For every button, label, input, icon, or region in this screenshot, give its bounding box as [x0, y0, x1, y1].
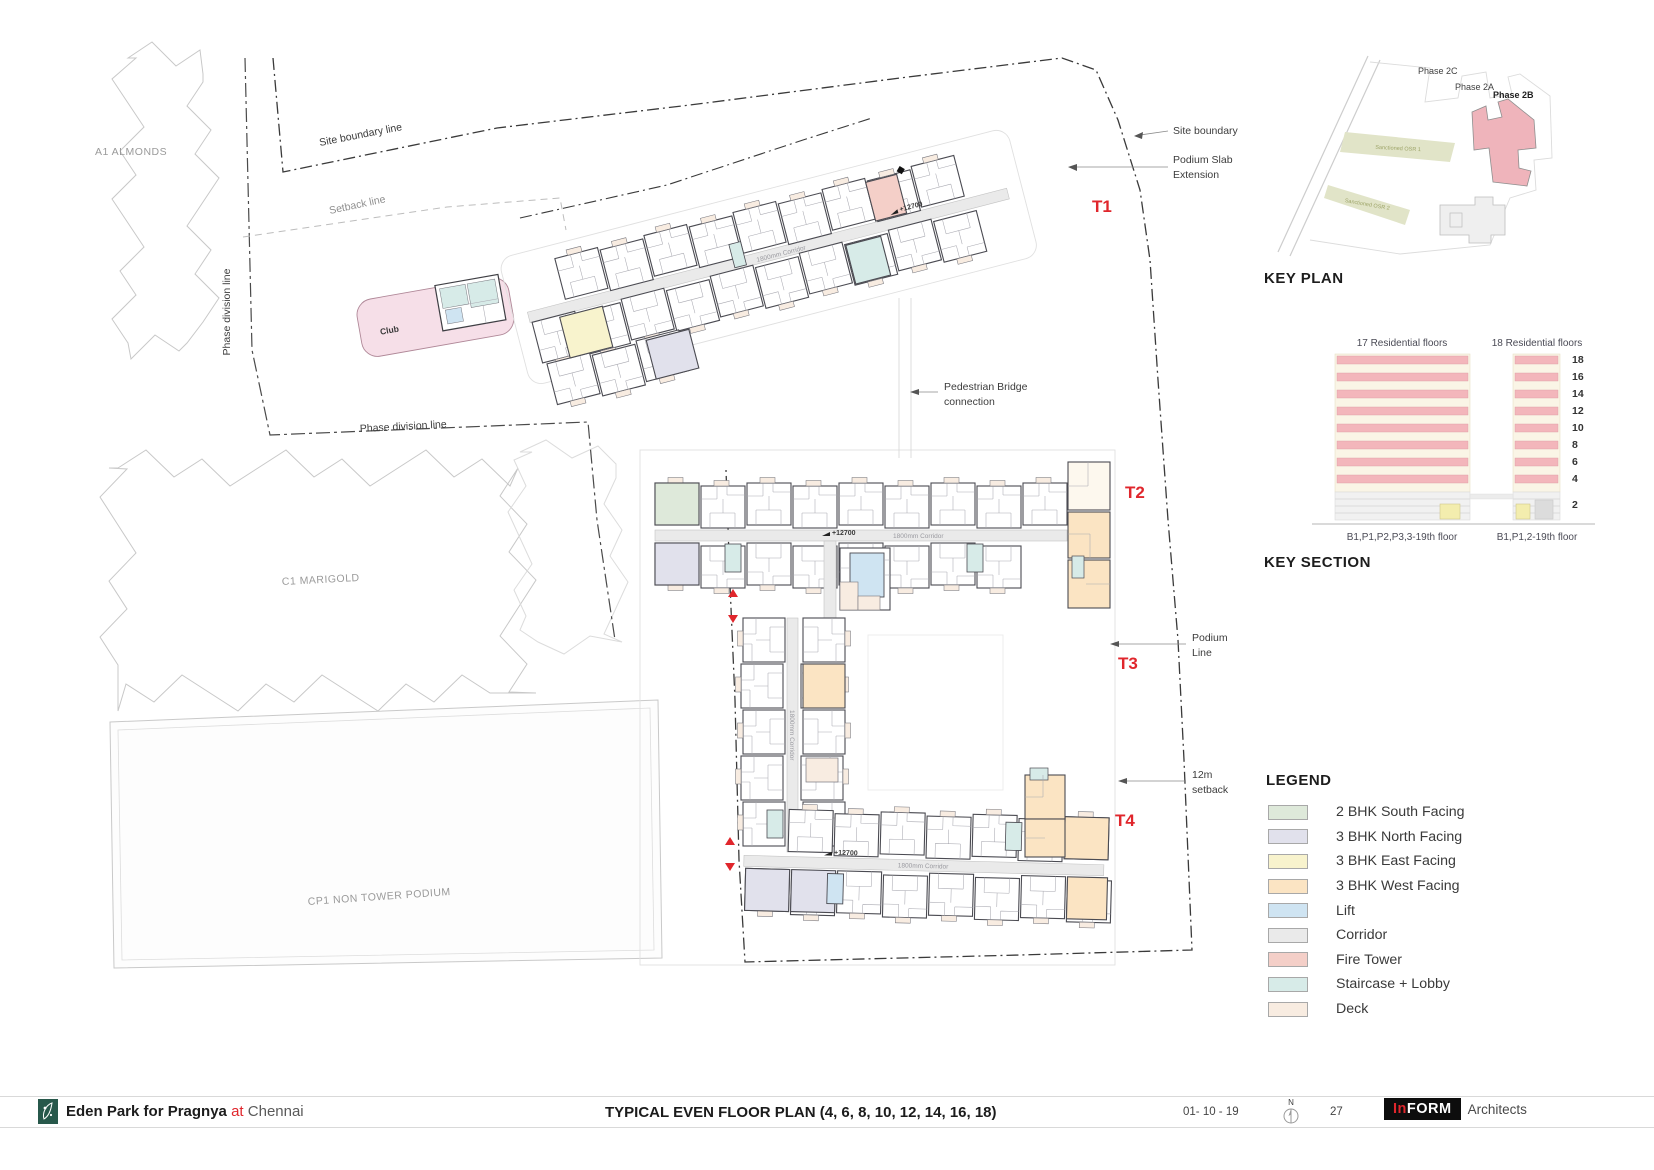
- legend-swatch: [1268, 928, 1308, 943]
- t2-right-arm: [1068, 462, 1110, 608]
- legend-label: Lift: [1336, 903, 1355, 919]
- footer-top-rule: [0, 1096, 1654, 1097]
- label-pedestrian-2: connection: [944, 396, 995, 408]
- legend-label: 3 BHK North Facing: [1336, 829, 1462, 845]
- svg-text:2: 2: [1572, 499, 1578, 511]
- corridor-label-t4: 1800mm Corridor: [898, 862, 950, 870]
- legend-label: Fire Tower: [1336, 952, 1402, 968]
- north-label: N: [1288, 1098, 1294, 1107]
- keyplan-phase2b-label: Phase 2B: [1493, 90, 1534, 100]
- label-podium-line-1: Podium: [1192, 632, 1228, 644]
- keysection-right-core2: [1535, 500, 1553, 519]
- setback-line: [243, 198, 566, 237]
- label-site-boundary-line: Site boundary line: [318, 121, 403, 149]
- cp1-podium-outline: [110, 700, 662, 968]
- label-site-boundary: Site boundary: [1173, 125, 1239, 137]
- legend-item-5: Corridor: [1268, 923, 1588, 948]
- label-tower-t2: T2: [1125, 483, 1145, 502]
- project-title: Eden Park for Pragnya at Chennai: [66, 1103, 304, 1120]
- svg-text:10: 10: [1572, 422, 1584, 434]
- key-section: 17 Residential floors 18 Residential flo…: [1250, 328, 1654, 550]
- label-tower-t1: T1: [1092, 197, 1112, 216]
- legend-label: 3 BHK West Facing: [1336, 878, 1460, 894]
- tower-t1: 1800mm Corridor +12700: [498, 127, 1047, 418]
- svg-text:18: 18: [1572, 354, 1584, 366]
- keysection-link: [1470, 494, 1513, 499]
- keyplan-phase2a-label: Phase 2A: [1455, 82, 1494, 92]
- legend-swatch: [1268, 829, 1308, 844]
- corridor-label-t2: 1800mm Corridor: [893, 533, 944, 540]
- label-setback: setback: [1192, 784, 1229, 796]
- project-city: Chennai: [248, 1103, 304, 1120]
- drawing-date: 01- 10 - 19: [1183, 1106, 1239, 1118]
- legend-swatch: [1268, 952, 1308, 967]
- label-c1-marigold: C1 MARIGOLD: [282, 572, 360, 588]
- legend-swatch: [1268, 1002, 1308, 1017]
- firm-form: FORM: [1407, 1101, 1452, 1117]
- keysection-right-header: 18 Residential floors: [1492, 338, 1583, 349]
- legend-item-6: Fire Tower: [1268, 948, 1588, 973]
- legend-label: Corridor: [1336, 927, 1387, 943]
- corridor-vertical: [824, 541, 836, 629]
- label-tower-t4: T4: [1115, 811, 1135, 830]
- courtyard-outline: [868, 635, 1003, 790]
- level-marker-t4: +12700: [834, 850, 858, 858]
- svg-text:14: 14: [1572, 388, 1584, 400]
- sheet-number: 27: [1330, 1106, 1343, 1118]
- label-phase-division-v: Phase division line: [221, 268, 233, 355]
- keysection-right-caption: B1,P1,2-19th floor: [1497, 532, 1578, 543]
- site-plan: Club 1800mm Corridor +12700: [0, 0, 1250, 1040]
- legend-label: Deck: [1336, 1001, 1368, 1017]
- legend-swatch: [1268, 977, 1308, 992]
- project-at: at: [231, 1103, 244, 1120]
- context-building-a1-almonds: [112, 42, 219, 359]
- keysection-left-header: 17 Residential floors: [1357, 338, 1448, 349]
- label-a1-almonds: A1 ALMONDS: [95, 146, 167, 158]
- legend-swatch: [1268, 805, 1308, 820]
- svg-text:6: 6: [1572, 456, 1578, 468]
- svg-text:4: 4: [1572, 473, 1578, 485]
- firm-logo-box: InFORM: [1384, 1098, 1461, 1120]
- keyplan-phase2b-area: [1472, 99, 1536, 186]
- corridor-label-t3: 1800mm Corridor: [788, 710, 795, 761]
- label-phase-division-h: Phase division line: [360, 418, 448, 435]
- legend-items: 2 BHK South Facing3 BHK North Facing3 BH…: [1268, 800, 1588, 1021]
- keysection-left-caption: B1,P1,P2,P3,3-19th floor: [1347, 532, 1458, 543]
- keysection-left-core: [1440, 504, 1460, 519]
- legend-item-3: 3 BHK West Facing: [1268, 874, 1588, 899]
- pragnya-logo: [38, 1099, 58, 1124]
- firm-logo: InFORM Architects: [1384, 1098, 1527, 1120]
- label-12m: 12m: [1192, 769, 1213, 781]
- label-pedestrian-1: Pedestrian Bridge: [944, 381, 1028, 393]
- key-section-title: KEY SECTION: [1264, 554, 1371, 571]
- keyplan-phase2c-label: Phase 2C: [1418, 66, 1458, 76]
- project-name: Eden Park for Pragnya: [66, 1103, 227, 1120]
- club: Club: [354, 273, 516, 359]
- legend-title: LEGEND: [1266, 772, 1332, 789]
- firm-suffix: Architects: [1468, 1102, 1527, 1117]
- legend-label: 2 BHK South Facing: [1336, 804, 1465, 820]
- legend-swatch: [1268, 879, 1308, 894]
- svg-text:12: 12: [1572, 405, 1584, 417]
- legend-item-8: Deck: [1268, 997, 1588, 1022]
- legend-item-1: 3 BHK North Facing: [1268, 825, 1588, 850]
- legend-label: Staircase + Lobby: [1336, 976, 1450, 992]
- legend-item-0: 2 BHK South Facing: [1268, 800, 1588, 825]
- legend-swatch: [1268, 854, 1308, 869]
- legend-label: 3 BHK East Facing: [1336, 853, 1456, 869]
- legend-swatch: [1268, 903, 1308, 918]
- keysection-right-core: [1516, 504, 1530, 519]
- key-plan: Sanctioned OSR 1 Sanctioned OSR 2 Phase …: [1250, 40, 1654, 290]
- label-podium-slab-1: Podium Slab: [1173, 154, 1233, 166]
- firm-in: In: [1393, 1101, 1407, 1117]
- label-podium-slab-2: Extension: [1173, 169, 1219, 181]
- pedestrian-bridge-lines: [899, 298, 911, 458]
- label-setback-line: Setback line: [328, 193, 387, 217]
- drawing-sheet: Club 1800mm Corridor +12700: [0, 0, 1654, 1170]
- svg-text:16: 16: [1572, 371, 1584, 383]
- legend-item-4: Lift: [1268, 898, 1588, 923]
- north-compass: N: [1278, 1097, 1304, 1132]
- svg-text:+12700: +12700: [832, 530, 856, 537]
- t2-core-cluster: [840, 548, 890, 610]
- label-podium-line-2: Line: [1192, 647, 1212, 659]
- keysection-floor-numbers: 18161412108642: [1572, 354, 1584, 511]
- label-tower-t3: T3: [1118, 654, 1138, 673]
- legend-item-7: Staircase + Lobby: [1268, 972, 1588, 997]
- keyplan-road: [1278, 56, 1380, 256]
- drawing-title: TYPICAL EVEN FLOOR PLAN (4, 6, 8, 10, 12…: [605, 1104, 997, 1121]
- svg-text:8: 8: [1572, 439, 1578, 451]
- context-building-outline: [508, 440, 628, 654]
- footer-bottom-rule: [0, 1127, 1654, 1128]
- key-plan-title: KEY PLAN: [1264, 270, 1344, 287]
- legend-item-2: 3 BHK East Facing: [1268, 849, 1588, 874]
- t4-right-arm: [1025, 768, 1065, 857]
